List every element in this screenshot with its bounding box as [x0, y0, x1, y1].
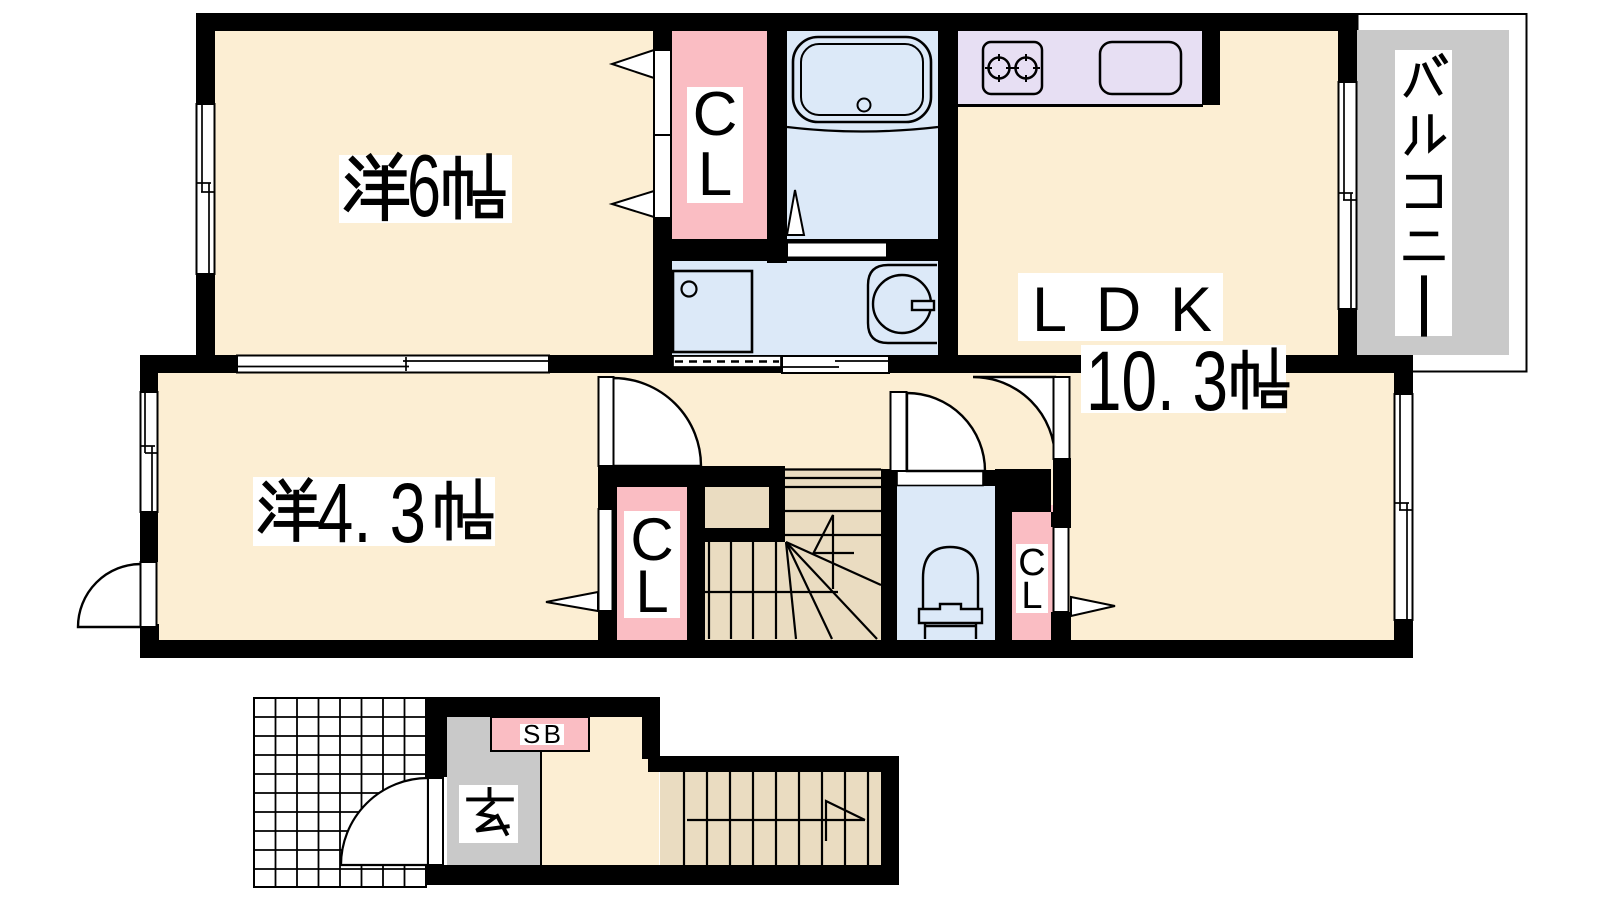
svg-text:C: C [693, 80, 738, 149]
svg-text:4. 3: 4. 3 [317, 466, 426, 560]
svg-text:L: L [698, 140, 732, 209]
svg-text:6: 6 [407, 136, 441, 235]
svg-text:10. 3: 10. 3 [1086, 334, 1228, 428]
svg-text:L: L [635, 558, 668, 625]
svg-text:L: L [1021, 575, 1042, 617]
